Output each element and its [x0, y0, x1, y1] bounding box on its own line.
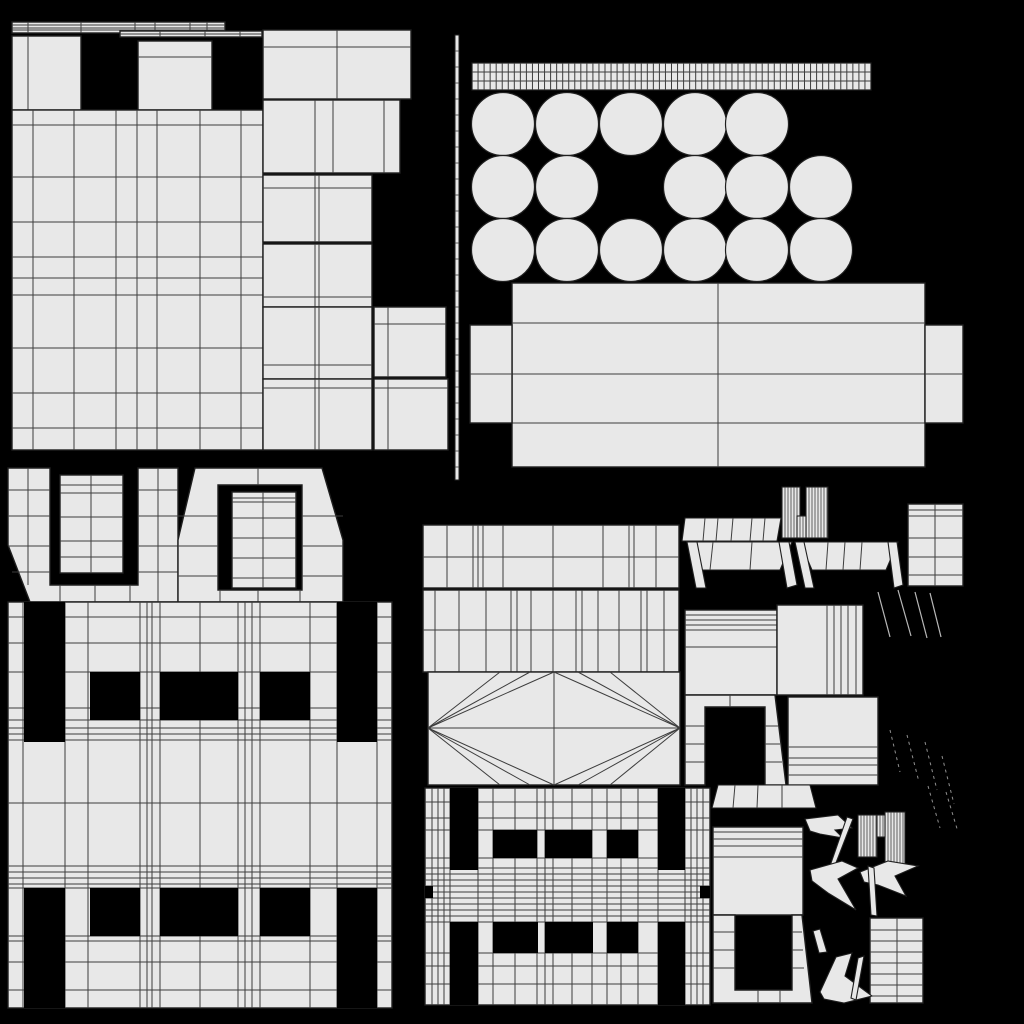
arrow-shard-4 — [820, 953, 872, 1003]
tl-col-band2 — [263, 175, 372, 242]
center-mid-grid — [423, 590, 679, 672]
tl-block-mid — [138, 41, 212, 110]
square-stripe-bottom — [788, 697, 878, 785]
circle-13 — [600, 219, 663, 282]
facade-bottom-left — [8, 602, 392, 1008]
circle-9 — [726, 156, 789, 219]
ladder-u-piece — [782, 487, 828, 538]
canopy-envelope — [428, 672, 680, 785]
tl-col-band1 — [263, 100, 400, 173]
blade-shard-3 — [813, 929, 827, 953]
circle-5 — [726, 93, 789, 156]
square-stripe-side — [777, 605, 863, 695]
uv-atlas-canvas — [0, 0, 1024, 1024]
ladder-m-piece — [858, 812, 905, 867]
thin-vertical-strip — [455, 35, 459, 480]
circle-16 — [790, 219, 853, 282]
u-left-inner-panel — [60, 475, 123, 573]
bench-b-leg-right — [888, 542, 903, 588]
trapezoid-band — [712, 785, 816, 808]
circle-11 — [472, 219, 535, 282]
tl-block-left — [12, 36, 81, 110]
circle-7 — [536, 156, 599, 219]
square-stripe-top — [685, 610, 777, 695]
facade-bottom-center — [425, 788, 710, 1005]
circle-15 — [726, 219, 789, 282]
frame-open-top — [713, 915, 812, 1003]
circle-8 — [664, 156, 727, 219]
cross-flap-left — [470, 325, 512, 423]
tl-appendage-a — [374, 307, 446, 377]
grid-small-a — [908, 504, 963, 586]
bench-b-seat — [800, 542, 898, 570]
tl-appendage-b — [374, 379, 448, 450]
cross-main — [512, 283, 925, 467]
uv-texture-atlas — [0, 0, 1024, 1024]
frame-open-bottom — [685, 695, 786, 785]
square-stripe-top-2 — [713, 827, 803, 915]
circle-12 — [536, 219, 599, 282]
circle-3 — [600, 93, 663, 156]
tl-col-band5 — [263, 379, 372, 450]
trapezoid-strip — [682, 518, 781, 541]
cross-flap-right — [925, 325, 963, 423]
ring-inner-panel — [232, 492, 296, 588]
checker-strip — [472, 63, 871, 90]
tl-col-band4 — [263, 307, 372, 379]
center-top-grid — [423, 525, 679, 588]
circle-14 — [664, 219, 727, 282]
bench-a-seat — [687, 542, 792, 570]
circle-10 — [790, 156, 853, 219]
circle-2 — [536, 93, 599, 156]
strip-top-b — [120, 31, 262, 37]
circle-4 — [664, 93, 727, 156]
grid-small-b — [870, 918, 923, 1003]
circle-6 — [472, 156, 535, 219]
circle-1 — [472, 93, 535, 156]
tl-main-grid — [12, 110, 263, 450]
arrow-shard-3 — [810, 861, 858, 910]
hatch-lines-a — [878, 590, 941, 638]
tl-block-right — [263, 30, 411, 99]
tl-col-band3 — [263, 244, 372, 307]
